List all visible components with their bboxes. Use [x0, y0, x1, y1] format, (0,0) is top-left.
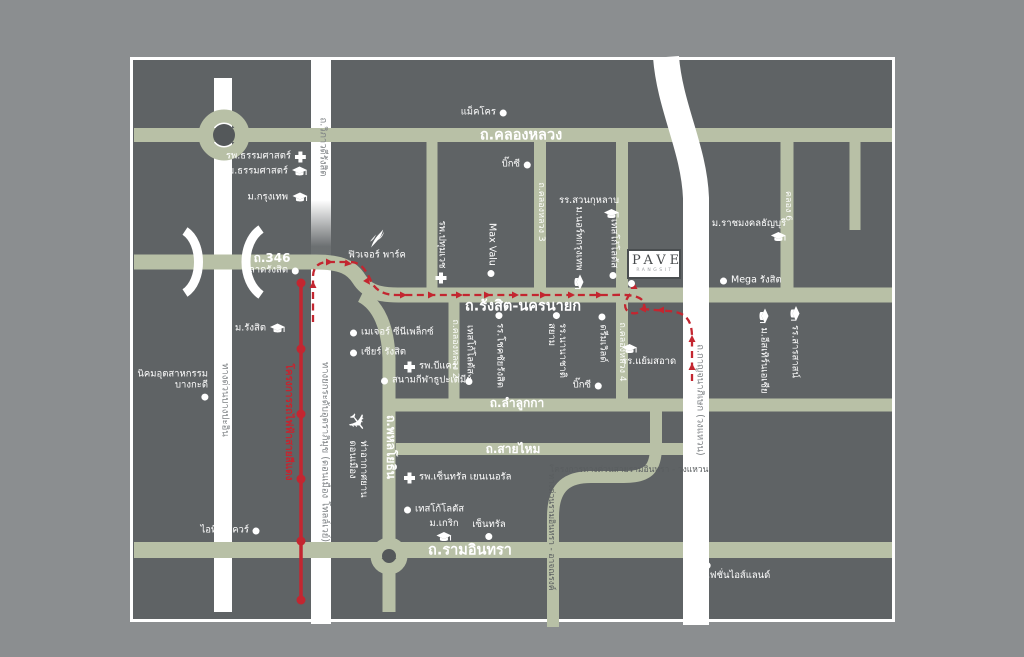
road-khlong-luang-label: ถ.คลองหลวง	[480, 128, 562, 145]
road-bang-pa-in-expressway-label: ทางด่วนบางปะอิน	[219, 363, 230, 437]
road-ramindra-label: ถ.รามอินทรา	[428, 543, 512, 560]
talad-rangsit: ตลาดรังสิต	[243, 266, 299, 277]
location-dot-icon	[466, 378, 473, 385]
eastern-asia-university-label: ม.อีสเทิร์นเอเชีย	[758, 327, 769, 393]
road-saimai: ถ.สายไหม	[486, 443, 541, 457]
thupatemi-stadium: สนามกีฬาธูปะเตมีย์	[381, 376, 472, 387]
location-dot-icon	[610, 272, 617, 279]
pathum-vech-hospital: รพ.ปทุมเวช	[436, 221, 447, 284]
bangkok-university-label: ม.กรุงเทพ	[247, 193, 288, 204]
road-khlong-luang: ถ.คลองหลวง	[480, 128, 562, 145]
red-line-project: โครงการรถไฟฟ้าสายสีแดง	[282, 363, 294, 480]
university-cap-icon	[622, 344, 637, 355]
university-cap-icon	[436, 532, 451, 543]
location-dot-icon	[404, 506, 411, 513]
bangkadi-industrial-estate-label: นิคมอุตสาหกรรม บางกะดี	[137, 370, 208, 392]
red-line-project-label: โครงการรถไฟฟ้าสายสีแดง	[282, 363, 294, 480]
central-general-hospital-label: รพ.เซ็นทรัล เยนเนอรัล	[419, 473, 511, 484]
location-dot-icon	[350, 329, 357, 336]
location-dot-icon	[201, 393, 208, 400]
chokchai-rangsit-school-label: รร.โชคชัยรังสิต	[494, 323, 505, 388]
location-dot-icon	[253, 527, 260, 534]
expwy-project-ramindra-wongwaen: โครงการทางด่วนสายรามอินทรา - วงแหวน	[550, 466, 709, 476]
road-khlong-luang-3: ถ.คลองหลวง 3	[536, 182, 546, 241]
pave-location-dot	[628, 280, 635, 287]
siam-international-school: รร.นานาชาติ สยาม	[545, 312, 567, 378]
location-dot-icon	[500, 109, 507, 116]
future-park-logo-icon	[369, 229, 385, 249]
road-khlong-6-label: คลอง 6	[783, 191, 793, 221]
location-dot-icon	[292, 267, 299, 274]
sarasas-school-label: รร.สารสาสน์	[789, 325, 800, 378]
location-dot-icon	[704, 562, 711, 569]
mega-rangsit-label: Mega รังสิต	[731, 276, 782, 287]
central-ramindra: เซ็นทรัล	[472, 520, 505, 540]
bangkadi-industrial-estate: นิคมอุตสาหกรรม บางกะดี	[137, 370, 208, 401]
don-mueang-airport: ✈ท่าอากาศยาน ดอนเมือง	[345, 412, 369, 497]
location-dot-icon	[599, 313, 606, 320]
hospital-cross-icon	[404, 473, 415, 484]
rmut-thanyaburi: ม.ราชมงคลธัญบุรี	[712, 219, 786, 243]
big-c-lamlukka: บิ๊กซี	[573, 381, 602, 392]
road-saimai-label: ถ.สายไหม	[486, 443, 541, 457]
future-park: ฟิวเจอร์ พาร์ค	[348, 229, 406, 262]
location-dot-icon	[381, 377, 388, 384]
road-lamlukka: ถ.ลำลูกกา	[490, 397, 545, 411]
central-ramindra-label: เซ็นทรัล	[472, 520, 505, 531]
sarasas-school: รร.สารสาสน์	[789, 306, 800, 378]
road-viphavadi-rangsit: ถ.วิภาวดีรังสิต	[317, 118, 328, 177]
map-labels-layer: ถ.คลองหลวงถ.รังสิต-นครนายกถ.346ถ.ลำลูกกา…	[0, 0, 1024, 657]
yaemsaard-school-label: รร.แย้มสอาด	[622, 357, 676, 368]
hospital-cross-icon	[436, 272, 447, 283]
road-khlong-luang-3-label: ถ.คลองหลวง 3	[536, 182, 546, 241]
hospital-cross-icon	[404, 362, 415, 373]
road-bang-pa-in-expressway: ทางด่วนบางปะอิน	[219, 363, 230, 437]
location-dot-icon	[595, 382, 602, 389]
tesco-lotus-khlong-luang: เทสโก้โลตัส	[608, 219, 619, 279]
thammasat-university-label: ม.ธรรมศาสตร์	[228, 167, 288, 178]
road-kanchanaphisek: ถ.กาญจนาภิเษก (วงแหวน)	[694, 344, 705, 456]
don-mueang-airport-label: ท่าอากาศยาน ดอนเมือง	[346, 440, 368, 497]
dream-world-label: ดรีมเวิลด์	[597, 324, 608, 362]
road-uttaraphimuk-tollway-label: ทางยกระดับอุตราภิมุข (ดอนเมือง โทลล์เวย์…	[319, 362, 330, 542]
max-valu-label: Max Valu	[486, 223, 497, 266]
pathum-vech-hospital-label: รพ.ปทุมเวช	[436, 221, 447, 269]
it-square-label: ไอที สแควร์	[201, 526, 249, 537]
university-cap-icon	[758, 308, 769, 323]
location-dot-icon	[496, 312, 503, 319]
siam-international-school-label: รร.นานาชาติ สยาม	[545, 323, 567, 378]
big-c-lamlukka-label: บิ๊กซี	[573, 381, 591, 392]
university-cap-icon	[573, 275, 584, 290]
thupatemi-stadium-label: สนามกีฬาธูปะเตมีย์	[392, 376, 472, 387]
future-park-label: ฟิวเจอร์ พาร์ค	[348, 251, 406, 262]
expwy-ramindra-atnarong: ทางด่วนรามอินทรา - อาจณรงค์	[545, 473, 555, 590]
big-c-khlong-luang: บิ๊กซี	[502, 160, 531, 171]
university-cap-icon	[292, 167, 307, 178]
north-bangkok-university: ม.นอร์ทกรุงเทพ	[573, 206, 584, 289]
central-general-hospital: รพ.เซ็นทรัล เยนเนอรัล	[404, 473, 511, 484]
major-cineplex: เมเจอร์ ซีนีเพล็กซ์	[350, 328, 434, 339]
rmut-thanyaburi-label: ม.ราชมงคลธัญบุรี	[712, 219, 786, 230]
zeer-rangsit: เซียร์ รังสิต	[350, 348, 406, 359]
pave-logo-subtitle: RANGSIT	[631, 268, 679, 273]
location-dot-icon	[350, 349, 357, 356]
thammasat-hospital: รพ.ธรรมศาสตร์	[226, 152, 306, 163]
fashion-island-label: แฟชั่นไอส์แลนด์	[704, 571, 771, 582]
rangsit-university: ม.รังสิต	[235, 324, 285, 335]
chokchai-rangsit-school: รร.โชคชัยรังสิต	[494, 312, 505, 388]
thammasat-university: ม.ธรรมศาสตร์	[228, 167, 307, 178]
yaemsaard-school: รร.แย้มสอาด	[622, 344, 676, 368]
b-care-hospital-label: รพ.บีแคร์	[419, 362, 457, 373]
expwy-ramindra-atnarong-label: ทางด่วนรามอินทรา - อาจณรงค์	[545, 473, 555, 590]
suan-kularb-school-label: รร.สวนกุหลาบ	[559, 196, 619, 207]
north-bangkok-university-label: ม.นอร์ทกรุงเทพ	[573, 206, 584, 270]
rangsit-university-label: ม.รังสิต	[235, 324, 266, 335]
thammasat-hospital-label: รพ.ธรรมศาสตร์	[226, 152, 291, 163]
major-cineplex-label: เมเจอร์ ซีนีเพล็กซ์	[361, 328, 434, 339]
fashion-island: แฟชั่นไอส์แลนด์	[704, 562, 771, 582]
max-valu: Max Valu	[486, 223, 497, 277]
road-viphavadi-rangsit-label: ถ.วิภาวดีรังสิต	[317, 118, 328, 177]
road-kanchanaphisek-label: ถ.กาญจนาภิเษก (วงแหวน)	[694, 344, 705, 456]
makro: แม็คโคร	[461, 108, 507, 119]
dream-world: ดรีมเวิลด์	[597, 313, 608, 362]
talad-rangsit-label: ตลาดรังสิต	[243, 266, 288, 277]
location-dot-icon	[485, 533, 492, 540]
university-cap-icon	[270, 324, 285, 335]
big-c-khlong-luang-label: บิ๊กซี	[502, 160, 520, 171]
location-dot-icon	[524, 161, 531, 168]
pave-logo-title: PAVE	[632, 253, 679, 268]
krirk-university-label: ม.เกริก	[429, 519, 458, 530]
tesco-lotus-lamlukka-label: เทสโก้โลตัส	[464, 325, 475, 374]
zeer-rangsit-label: เซียร์ รังสิต	[361, 348, 406, 359]
road-lamlukka-label: ถ.ลำลูกกา	[490, 397, 545, 411]
location-dot-icon	[553, 312, 560, 319]
location-dot-icon	[720, 277, 727, 284]
bangkok-university: ม.กรุงเทพ	[247, 193, 307, 204]
road-phahonyothin: ถ.พหลโยธิน	[383, 415, 397, 479]
location-dot-icon	[488, 270, 495, 277]
university-cap-icon	[771, 232, 786, 243]
road-ramindra: ถ.รามอินทรา	[428, 543, 512, 560]
it-square: ไอที สแควร์	[201, 526, 260, 537]
hospital-cross-icon	[295, 152, 306, 163]
krirk-university: ม.เกริก	[429, 519, 458, 543]
university-cap-icon	[789, 306, 800, 321]
eastern-asia-university: ม.อีสเทิร์นเอเชีย	[758, 308, 769, 393]
tesco-lotus-ramindra: เทสโก้โลตัส	[404, 505, 464, 516]
road-uttaraphimuk-tollway: ทางยกระดับอุตราภิมุข (ดอนเมือง โทลล์เวย์…	[319, 362, 330, 542]
road-phahonyothin-label: ถ.พหลโยธิน	[383, 415, 397, 479]
tesco-lotus-khlong-luang-label: เทสโก้โลตัส	[608, 219, 619, 268]
suan-kularb-school: รร.สวนกุหลาบ	[559, 196, 619, 220]
mega-rangsit: Mega รังสิต	[720, 276, 782, 287]
airplane-icon: ✈	[341, 407, 372, 438]
tesco-lotus-ramindra-label: เทสโก้โลตัส	[415, 505, 464, 516]
tesco-lotus-lamlukka: เทสโก้โลตัส	[464, 325, 475, 385]
road-khlong-6: คลอง 6	[783, 191, 793, 221]
b-care-hospital: รพ.บีแคร์	[404, 362, 457, 373]
makro-label: แม็คโคร	[461, 108, 496, 119]
pave-logo: PAVE RANGSIT	[627, 249, 681, 279]
expwy-project-ramindra-wongwaen-label: โครงการทางด่วนสายรามอินทรา - วงแหวน	[550, 466, 709, 476]
university-cap-icon	[292, 193, 307, 204]
